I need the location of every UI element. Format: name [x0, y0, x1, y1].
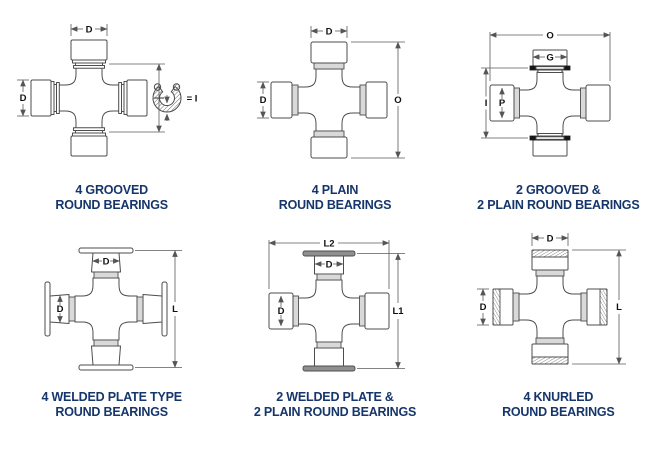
dim-label-right: L	[172, 304, 178, 315]
dimension-left-d: D	[17, 80, 29, 116]
dim-label-cap: G	[547, 53, 554, 64]
cross-body	[298, 280, 360, 342]
drawing-4-welded-plate-round-bearings: D D L	[1, 227, 223, 387]
dim-label-left: D	[56, 304, 63, 315]
diagram-cell-4-welded-plate: D D L 4 WELDED PLATE TYPE ROUND BEARINGS	[0, 225, 223, 450]
knurled-cap-bottom	[532, 338, 568, 364]
knurled-cap-right	[581, 289, 607, 325]
dim-label-top: D	[85, 25, 92, 36]
caption-line: ROUND BEARINGS	[279, 198, 391, 213]
drawing-2-grooved-2-plain-round-bearings: O G I P	[447, 20, 669, 180]
caption-line: 2 WELDED PLATE &	[254, 390, 416, 405]
dim-label-right: L	[616, 302, 622, 313]
dim-label-cap: D	[326, 260, 333, 271]
caption-line: 2 PLAIN ROUND BEARINGS	[254, 405, 416, 420]
grooved-cap-left	[31, 80, 59, 116]
cross-body	[75, 278, 137, 340]
grooved-cap-right	[118, 80, 146, 116]
diagram-cell-4-plain: D D O 4 PLAIN ROUN	[223, 0, 446, 225]
cross-body	[519, 276, 581, 338]
caption-4-welded-plate: 4 WELDED PLATE TYPE ROUND BEARINGS	[41, 390, 181, 421]
drawing-2-welded-2-plain-round-bearings: L2 D D L1	[224, 227, 446, 387]
caption-line: 4 WELDED PLATE TYPE	[41, 390, 181, 405]
dim-label-left: I	[485, 98, 488, 109]
dim-label-left: D	[260, 95, 267, 106]
bearing-types-diagram: D D	[0, 0, 670, 450]
caption-4-knurled: 4 KNURLED ROUND BEARINGS	[502, 390, 614, 421]
dimension-top-d: D	[532, 233, 568, 246]
dim-label-right: L1	[392, 306, 404, 317]
caption-2-grooved-2-plain: 2 GROOVED & 2 PLAIN ROUND BEARINGS	[477, 183, 639, 214]
dim-label-top: O	[547, 31, 554, 42]
plain-cap-right	[581, 85, 611, 121]
drawing-4-grooved-round-bearings: D D	[1, 20, 223, 180]
grooved-cap-bottom	[530, 134, 570, 157]
dimension-top-d: D	[71, 24, 107, 36]
diagram-cell-2-grooved-2-plain: O G I P	[447, 0, 670, 225]
knurled-cap-left	[493, 289, 519, 325]
dim-label-left: D	[278, 306, 285, 317]
dim-label-top: D	[547, 234, 554, 245]
plain-cap-right	[360, 82, 387, 118]
dimension-left-d: D	[257, 82, 269, 118]
welded-cap-bottom	[303, 342, 355, 371]
caption-line: 2 PLAIN ROUND BEARINGS	[477, 198, 639, 213]
cross-body	[519, 72, 581, 134]
welded-cap-bottom	[79, 340, 133, 370]
caption-line: 2 GROOVED &	[477, 183, 639, 198]
plain-cap-left	[271, 82, 298, 118]
cross-body	[298, 69, 360, 131]
diagram-cell-4-knurled: D D L 4 KNURLED RO	[447, 225, 670, 450]
dim-label-top: L2	[323, 239, 334, 250]
caption-line: ROUND BEARINGS	[55, 198, 167, 213]
drawing-4-plain-round-bearings: D D O	[224, 20, 446, 180]
grooved-cap-bottom	[71, 128, 107, 156]
welded-cap-right	[137, 282, 167, 336]
caption-line: 4 PLAIN	[279, 183, 391, 198]
caption-line: 4 KNURLED	[502, 390, 614, 405]
grooved-cap-top	[71, 40, 107, 68]
diagram-cell-4-grooved: D D	[0, 0, 223, 225]
dim-label-left: D	[19, 93, 26, 104]
plain-cap-top	[311, 42, 347, 69]
dim-label-top: D	[102, 257, 109, 268]
plain-cap-bottom	[311, 131, 347, 158]
caption-line: ROUND BEARINGS	[41, 405, 181, 420]
diagram-cell-2-welded-2-plain: L2 D D L1	[223, 225, 446, 450]
caption-4-grooved: 4 GROOVED ROUND BEARINGS	[55, 183, 167, 214]
cross-body	[58, 67, 120, 129]
drawing-4-knurled-round-bearings: D D L	[447, 227, 669, 387]
plain-cap-right	[359, 293, 389, 329]
dim-label-right: O	[394, 95, 401, 106]
dimension-left-d: D	[477, 289, 489, 325]
caption-line: ROUND BEARINGS	[502, 405, 614, 420]
caption-4-plain: 4 PLAIN ROUND BEARINGS	[279, 183, 391, 214]
dim-label-bore: P	[499, 98, 506, 109]
dim-label-ring-equals: = I	[186, 93, 197, 104]
snap-ring-icon	[153, 84, 181, 121]
caption-line: 4 GROOVED	[55, 183, 167, 198]
dim-label-left: D	[480, 302, 487, 313]
dimension-top-d: D	[311, 26, 347, 38]
knurled-cap-top	[532, 250, 568, 276]
caption-2-welded-2-plain: 2 WELDED PLATE & 2 PLAIN ROUND BEARINGS	[254, 390, 416, 421]
dim-label-top: D	[326, 27, 333, 38]
